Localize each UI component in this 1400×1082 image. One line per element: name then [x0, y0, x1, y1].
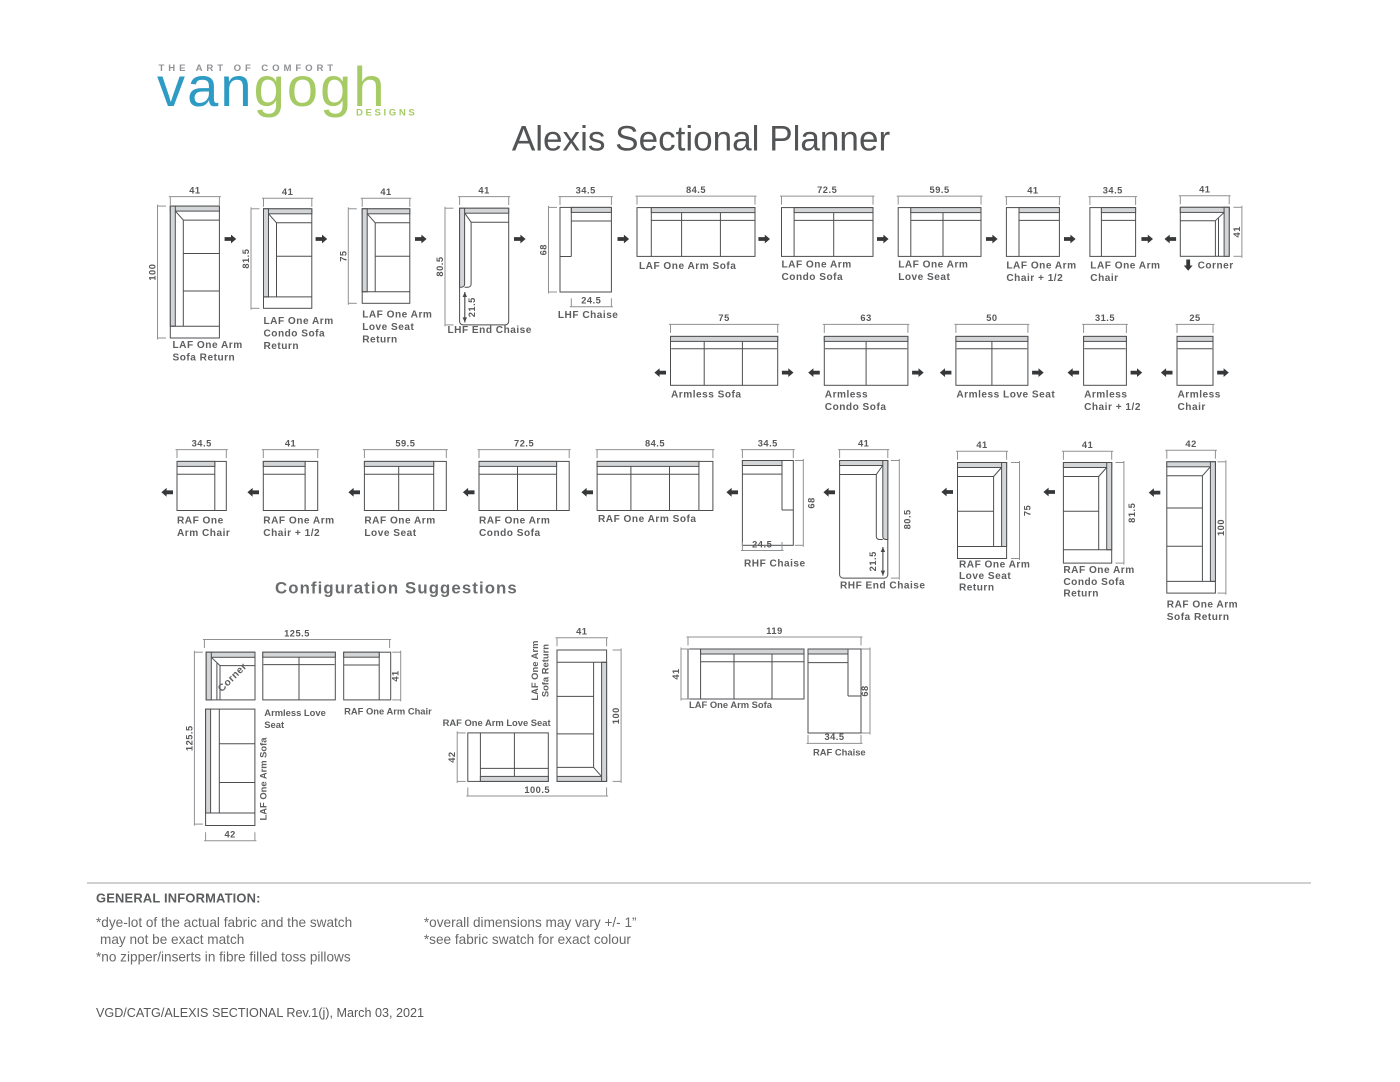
svg-text:Configuration Suggestions: Configuration Suggestions — [275, 579, 518, 598]
svg-text:Arm Chair: Arm Chair — [177, 528, 230, 539]
svg-text:RHF End Chaise: RHF End Chaise — [840, 581, 926, 592]
svg-text:Condo Sofa: Condo Sofa — [825, 402, 887, 413]
svg-text:42: 42 — [225, 830, 236, 840]
svg-text:LAF One Arm: LAF One Arm — [1006, 260, 1076, 271]
svg-text:119: 119 — [766, 626, 783, 636]
svg-text:41: 41 — [285, 438, 296, 448]
svg-text:41: 41 — [282, 187, 293, 197]
svg-text:DESIGNS: DESIGNS — [356, 108, 417, 119]
svg-text:Alexis Sectional Planner: Alexis Sectional Planner — [512, 120, 891, 159]
svg-text:84.5: 84.5 — [645, 438, 665, 448]
svg-text:41: 41 — [478, 185, 489, 195]
svg-text:may not be exact match: may not be exact match — [100, 932, 244, 947]
svg-text:VGD/CATG/ALEXIS SECTIONAL Rev.: VGD/CATG/ALEXIS SECTIONAL Rev.1(j), Marc… — [96, 1006, 424, 1020]
svg-text:68: 68 — [860, 685, 870, 696]
svg-text:LAF One Arm Sofa: LAF One Arm Sofa — [639, 261, 736, 272]
svg-text:RAF One Arm: RAF One Arm — [479, 515, 550, 526]
svg-text:41: 41 — [576, 627, 587, 637]
svg-text:80.5: 80.5 — [435, 256, 445, 276]
svg-text:41: 41 — [1232, 226, 1242, 237]
svg-text:RAF One Arm: RAF One Arm — [263, 515, 334, 526]
svg-text:Chair + 1/2: Chair + 1/2 — [1084, 402, 1141, 413]
svg-text:RAF One Arm: RAF One Arm — [364, 515, 435, 526]
svg-text:RHF Chaise: RHF Chaise — [744, 559, 806, 570]
svg-text:Armless: Armless — [825, 390, 868, 401]
svg-text:LAF One Arm Sofa: LAF One Arm Sofa — [258, 737, 269, 821]
svg-text:RAF One: RAF One — [177, 515, 224, 526]
svg-text:84.5: 84.5 — [686, 185, 706, 195]
svg-text:24.5: 24.5 — [752, 539, 772, 549]
svg-text:81.5: 81.5 — [241, 249, 251, 269]
svg-text:Armless Sofa: Armless Sofa — [671, 390, 742, 401]
svg-text:34.5: 34.5 — [576, 185, 596, 195]
svg-text:Armless Love: Armless Love — [264, 707, 326, 718]
svg-text:*overall dimensions may vary +: *overall dimensions may vary +/- 1” — [424, 915, 637, 930]
svg-text:41: 41 — [189, 185, 200, 195]
svg-text:*see fabric swatch for exact c: *see fabric swatch for exact colour — [424, 932, 631, 947]
svg-text:Condo Sofa: Condo Sofa — [264, 329, 326, 340]
svg-text:LHF Chaise: LHF Chaise — [558, 310, 619, 321]
svg-text:Return: Return — [362, 334, 398, 345]
svg-text:LAF One Arm: LAF One Arm — [264, 316, 334, 327]
svg-text:41: 41 — [976, 440, 987, 450]
svg-text:Condo Sofa: Condo Sofa — [782, 272, 844, 283]
svg-text:41: 41 — [858, 438, 869, 448]
svg-text:LAF One Arm: LAF One Arm — [782, 260, 852, 271]
svg-text:Return: Return — [1063, 589, 1099, 600]
svg-text:68: 68 — [539, 244, 549, 255]
svg-text:21.5: 21.5 — [868, 551, 878, 571]
svg-text:41: 41 — [1027, 185, 1038, 195]
svg-text:72.5: 72.5 — [514, 438, 534, 448]
svg-text:Chair: Chair — [1178, 402, 1206, 413]
svg-text:100: 100 — [1216, 519, 1226, 536]
svg-text:Armless: Armless — [1084, 390, 1127, 401]
svg-text:Chair + 1/2: Chair + 1/2 — [263, 528, 320, 539]
svg-text:41: 41 — [380, 187, 391, 197]
svg-text:*no zipper/inserts in fibre fi: *no zipper/inserts in fibre filled toss … — [96, 949, 351, 964]
svg-text:Love Seat: Love Seat — [959, 571, 1011, 582]
svg-text:LAF One Arm: LAF One Arm — [173, 340, 243, 351]
svg-text:34.5: 34.5 — [1103, 185, 1123, 195]
svg-text:Condo Sofa: Condo Sofa — [1063, 577, 1125, 588]
svg-text:Return: Return — [959, 583, 995, 594]
svg-text:41: 41 — [1082, 440, 1093, 450]
svg-text:41: 41 — [1199, 185, 1210, 195]
svg-text:Armless: Armless — [1178, 390, 1221, 401]
svg-text:34.5: 34.5 — [192, 438, 212, 448]
svg-text:RAF Chaise: RAF Chaise — [813, 746, 866, 757]
svg-text:Sofa Return: Sofa Return — [540, 644, 551, 697]
svg-text:21.5: 21.5 — [467, 297, 477, 317]
svg-text:75: 75 — [1023, 505, 1033, 516]
svg-text:Seat: Seat — [264, 719, 284, 730]
svg-text:GENERAL INFORMATION:: GENERAL INFORMATION: — [96, 891, 261, 906]
svg-text:LAF One Arm: LAF One Arm — [1090, 260, 1160, 271]
svg-text:41: 41 — [391, 670, 401, 681]
svg-text:LHF End Chaise: LHF End Chaise — [448, 325, 532, 336]
svg-text:Sofa Return: Sofa Return — [173, 353, 236, 364]
svg-text:41: 41 — [671, 668, 681, 679]
svg-text:LAF One Arm Sofa: LAF One Arm Sofa — [689, 699, 773, 710]
svg-text:42: 42 — [447, 751, 457, 762]
svg-text:75: 75 — [338, 250, 348, 261]
svg-text:31.5: 31.5 — [1095, 313, 1115, 323]
svg-text:63: 63 — [860, 313, 871, 323]
svg-text:RAF One Arm Chair: RAF One Arm Chair — [344, 706, 432, 717]
svg-text:Armless Love Seat: Armless Love Seat — [956, 390, 1055, 401]
svg-text:Sofa Return: Sofa Return — [1167, 612, 1230, 623]
svg-text:RAF One Arm: RAF One Arm — [959, 559, 1030, 570]
svg-text:LAF One Arm: LAF One Arm — [362, 309, 432, 320]
svg-text:50: 50 — [986, 313, 997, 323]
svg-text:*dye-lot of the actual fabric: *dye-lot of the actual fabric and the sw… — [96, 915, 352, 930]
svg-text:80.5: 80.5 — [902, 509, 912, 529]
svg-text:125.5: 125.5 — [184, 725, 194, 751]
svg-text:Condo Sofa: Condo Sofa — [479, 528, 541, 539]
svg-text:RAF One Arm Sofa: RAF One Arm Sofa — [598, 514, 696, 525]
svg-text:68: 68 — [806, 497, 816, 508]
svg-text:Chair + 1/2: Chair + 1/2 — [1006, 273, 1063, 284]
svg-text:LAF One Arm: LAF One Arm — [898, 260, 968, 271]
svg-text:59.5: 59.5 — [395, 438, 415, 448]
svg-text:RAF One Arm: RAF One Arm — [1167, 599, 1238, 610]
svg-text:24.5: 24.5 — [581, 296, 601, 306]
svg-text:LAF One Arm: LAF One Arm — [529, 641, 540, 701]
svg-text:59.5: 59.5 — [930, 185, 950, 195]
svg-text:81.5: 81.5 — [1127, 503, 1137, 523]
svg-text:RAF One Arm: RAF One Arm — [1063, 565, 1134, 576]
svg-text:Corner: Corner — [1198, 261, 1234, 272]
svg-text:100.5: 100.5 — [524, 785, 550, 795]
svg-text:125.5: 125.5 — [284, 628, 310, 638]
svg-text:100: 100 — [148, 264, 158, 281]
svg-text:Love Seat: Love Seat — [362, 322, 414, 333]
svg-text:Return: Return — [264, 341, 300, 352]
svg-text:100: 100 — [611, 707, 621, 724]
svg-text:75: 75 — [718, 313, 729, 323]
svg-text:Love Seat: Love Seat — [364, 528, 416, 539]
svg-text:72.5: 72.5 — [817, 185, 837, 195]
svg-text:25: 25 — [1189, 313, 1200, 323]
svg-text:Chair: Chair — [1090, 273, 1118, 284]
svg-text:34.5: 34.5 — [824, 732, 844, 742]
svg-text:vangogh: vangogh — [157, 55, 387, 118]
svg-text:RAF One Arm Love Seat: RAF One Arm Love Seat — [443, 717, 551, 728]
svg-text:34.5: 34.5 — [758, 438, 778, 448]
svg-text:42: 42 — [1185, 439, 1196, 449]
svg-text:Love Seat: Love Seat — [898, 272, 950, 283]
